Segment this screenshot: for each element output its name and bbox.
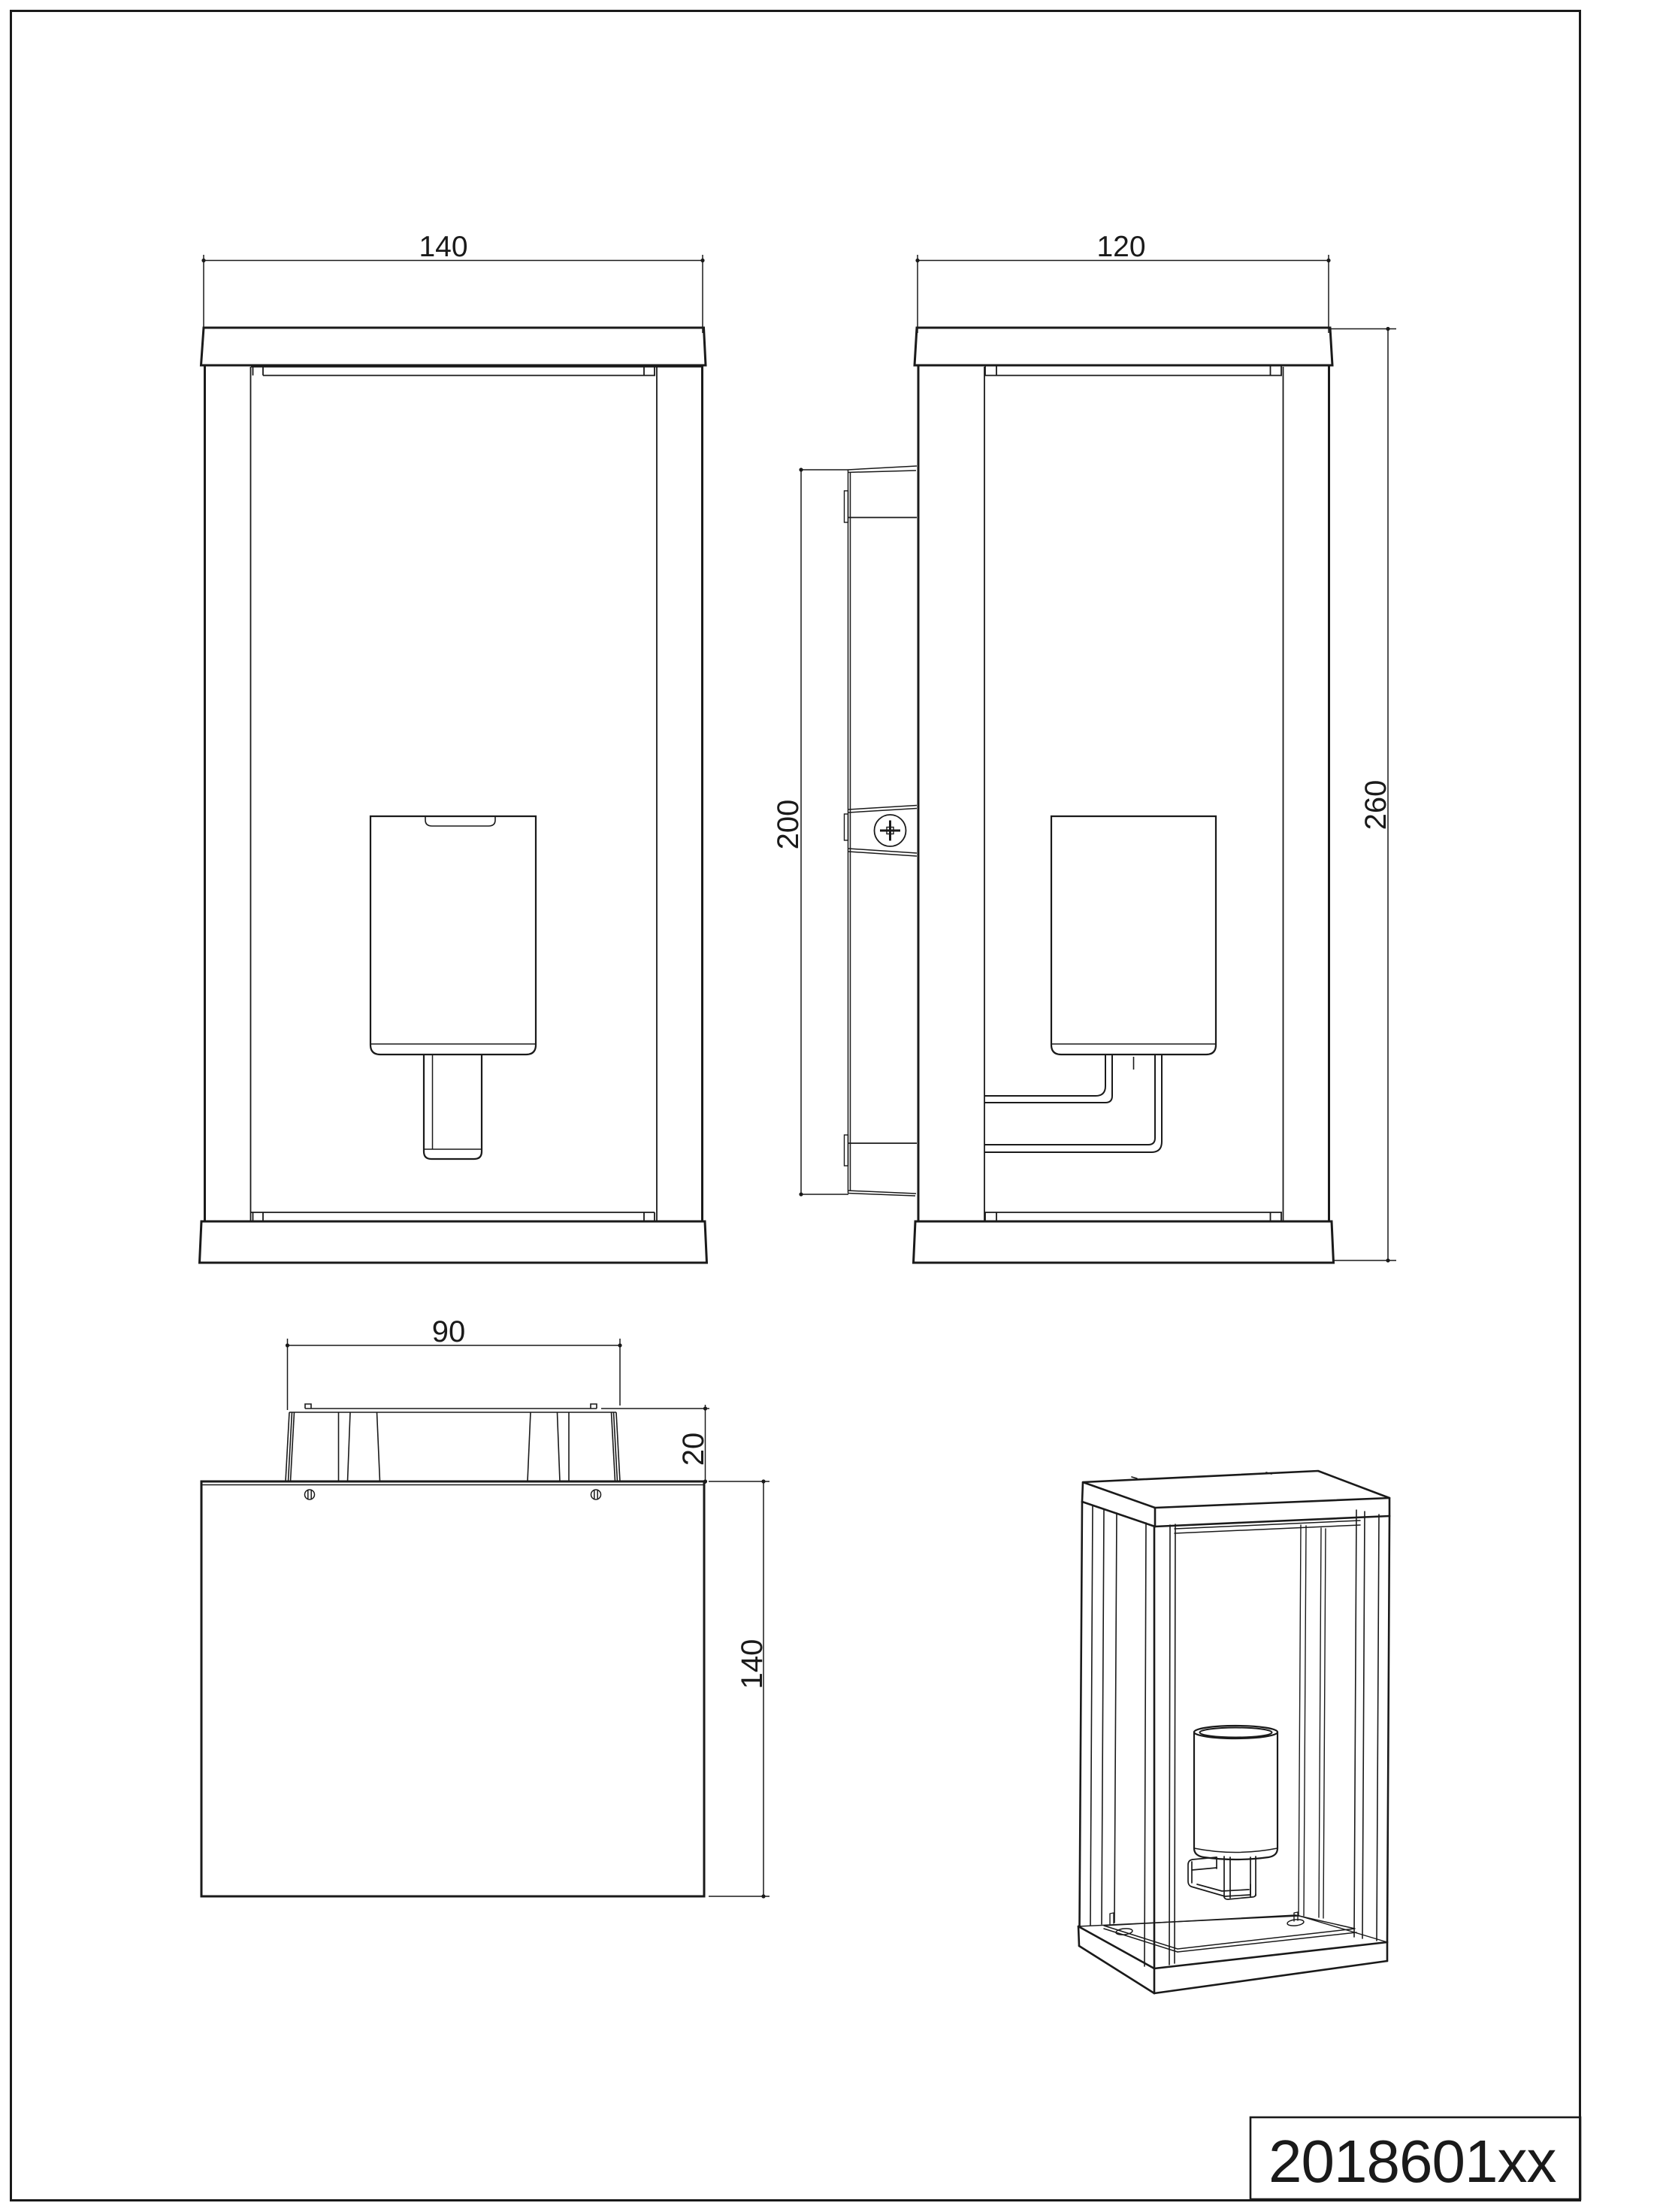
svg-text:2018601xx: 2018601xx [1268, 2128, 1556, 2195]
svg-text:20: 20 [677, 1433, 710, 1466]
svg-text:260: 260 [1359, 780, 1392, 831]
svg-text:140: 140 [736, 1639, 769, 1690]
svg-text:90: 90 [432, 1315, 466, 1348]
svg-text:120: 120 [1096, 231, 1145, 263]
svg-text:200: 200 [772, 800, 805, 850]
svg-text:140: 140 [419, 231, 467, 263]
